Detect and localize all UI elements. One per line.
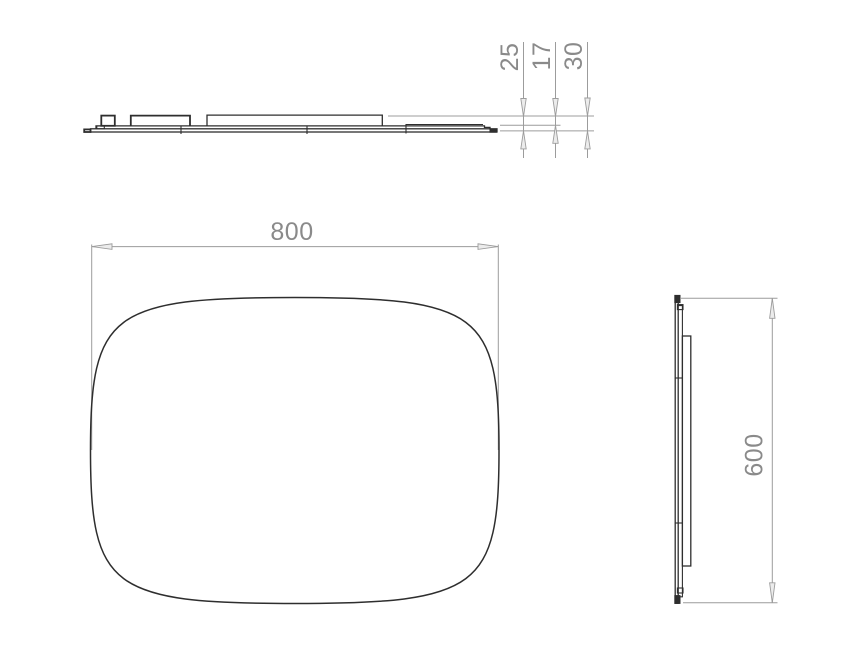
arrow-up-icon [585, 131, 590, 149]
glass-panel-edge [91, 129, 498, 132]
glass-panel-edge [675, 298, 678, 603]
side-profile-view: 600 [675, 295, 778, 603]
top-edge-cap [675, 295, 681, 303]
depth-dimensions: 25 17 30 [388, 42, 594, 158]
top-profile-view: 25 17 30 [84, 42, 594, 158]
dimension-800: 800 [92, 218, 499, 450]
dimension-label-25: 25 [496, 43, 524, 72]
arrow-down-icon [770, 583, 775, 603]
arrow-down-icon [585, 98, 590, 116]
dimension-600: 600 [681, 298, 778, 603]
mounting-rail [682, 336, 690, 566]
dimension-17: 17 [528, 42, 558, 158]
dimension-25: 25 [496, 42, 526, 158]
arrow-right-icon [478, 244, 498, 250]
arrow-up-icon [521, 131, 526, 149]
mounting-rail-long [207, 115, 382, 126]
technical-drawing: 25 17 30 800 [0, 0, 862, 647]
dimension-label-800: 800 [270, 218, 313, 246]
dimension-label-17: 17 [528, 42, 556, 71]
right-edge-cap [490, 129, 497, 132]
wall-clip [101, 116, 115, 126]
mounting-rail-short [131, 116, 190, 126]
arrow-left-icon [92, 244, 112, 250]
front-view: 800 [91, 218, 500, 603]
dimension-label-30: 30 [560, 42, 588, 71]
arrow-down-icon [521, 99, 526, 117]
mirror-outline [91, 298, 500, 604]
dimension-30: 30 [560, 42, 590, 158]
left-edge-cap [84, 129, 90, 132]
dimension-label-600: 600 [741, 433, 769, 476]
arrow-up-icon [553, 125, 558, 143]
arrow-down-icon [553, 99, 558, 117]
wall-clip-base [97, 126, 105, 129]
arrow-up-icon [770, 298, 775, 318]
drawing-canvas: 25 17 30 800 [0, 0, 862, 647]
